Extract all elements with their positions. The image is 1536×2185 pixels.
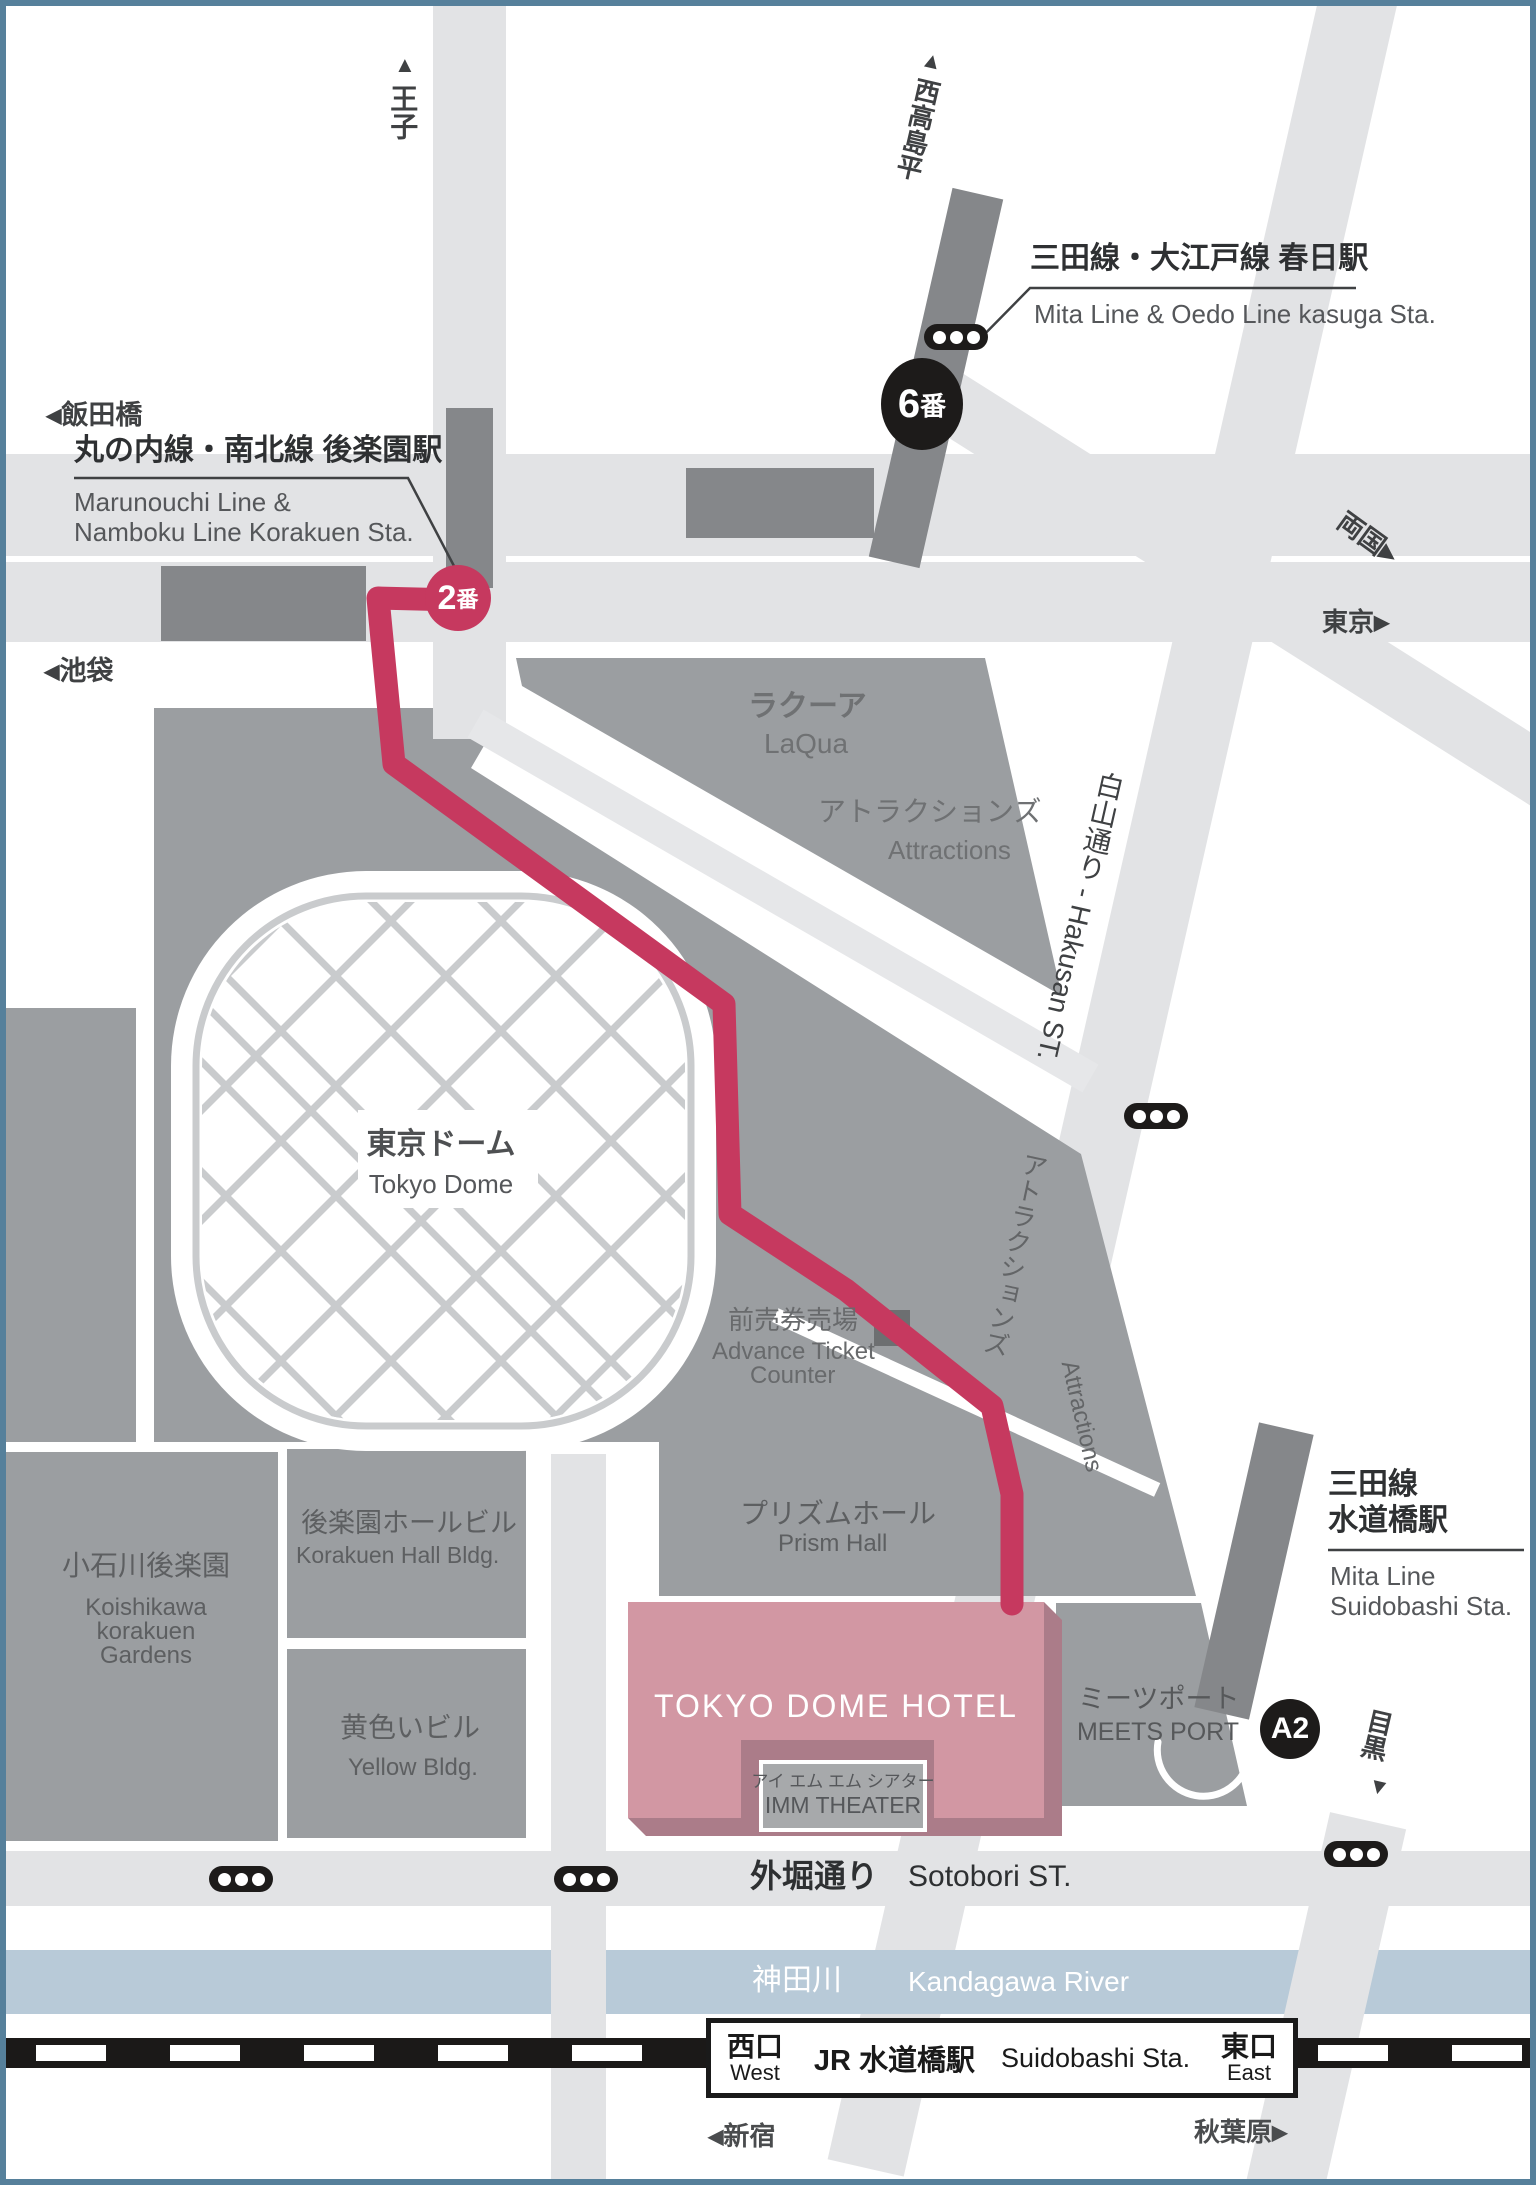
imm-theater-label-en: IMM THEATER xyxy=(765,1792,921,1820)
exit-a2-badge: A2 xyxy=(1260,1699,1320,1759)
exit-2-badge: 2番 xyxy=(425,565,491,631)
koishikawa-label-jp: 小石川後楽園 xyxy=(46,1550,246,1582)
sotobori-label-jp: 外堀通り xyxy=(750,1858,878,1895)
left-arrow-icon: ◀ xyxy=(46,405,61,427)
traffic-light-icon xyxy=(1324,1841,1388,1867)
tokyo-dome-label-jp: 東京ドーム xyxy=(361,1128,521,1163)
traffic-light-icon xyxy=(1124,1103,1188,1129)
suidobashi-mita-label-en1: Mita Line xyxy=(1330,1562,1436,1592)
korakuen-station-label-en1: Marunouchi Line & xyxy=(74,488,291,518)
traffic-light-icon xyxy=(924,324,988,350)
suidobashi-mita-label-en2: Suidobashi Sta. xyxy=(1330,1592,1512,1622)
yellow-bldg-label-jp: 黄色いビル xyxy=(340,1712,480,1744)
garden-north-block xyxy=(6,1008,136,1442)
meets-port-label-en: MEETS PORT xyxy=(1074,1718,1242,1747)
korakuen-hall-label-jp: 後楽園ホールビル xyxy=(301,1508,517,1539)
direction-oji: 王子 xyxy=(386,84,418,184)
korakuen-hall-label-en: Korakuen Hall Bldg. xyxy=(296,1542,499,1568)
jr-station-name: JR 水道橋駅 Suidobashi Sta. xyxy=(814,2037,1190,2079)
left-arrow-icon: ◀ xyxy=(708,2126,723,2148)
korakuen-station-label-en2: Namboku Line Korakuen Sta. xyxy=(74,518,414,548)
traffic-light-icon xyxy=(554,1866,618,1892)
jr-suidobashi-station-box: 西口 West JR 水道橋駅 Suidobashi Sta. 東口 East xyxy=(706,2018,1298,2098)
imm-theater-box: アイ エム エム シアター IMM THEATER xyxy=(759,1760,927,1832)
imm-theater-label-jp: アイ エム エム シアター xyxy=(751,1772,934,1792)
hotel-label: TOKYO DOME HOTEL xyxy=(636,1688,1036,1725)
right-arrow-icon: ▶ xyxy=(1374,612,1389,634)
laqua-label-en: LaQua xyxy=(764,728,848,760)
meets-port-label-jp: ミーツポート xyxy=(1078,1684,1238,1715)
direction-iidabashi: ◀飯田橋 xyxy=(46,400,142,431)
kasuga-station-label-en: Mita Line & Oedo Line kasuga Sta. xyxy=(1034,300,1436,330)
jr-east-exit: 東口 East xyxy=(1221,2032,1277,2084)
direction-akihabara: 秋葉原▶ xyxy=(1194,2118,1287,2148)
direction-tokyo: 東京▶ xyxy=(1322,608,1389,638)
river-label-en: Kandagawa River xyxy=(908,1966,1129,1998)
koishikawa-label-en3: Gardens xyxy=(46,1642,246,1670)
attractions-upper-label-jp: アトラクションズ xyxy=(818,796,1041,828)
exit-2-num: 2 xyxy=(438,579,457,618)
suidobashi-mita-label-jp1: 三田線 xyxy=(1328,1468,1418,1503)
traffic-light-icon xyxy=(209,1866,273,1892)
ticket-counter-label-en2: Counter xyxy=(750,1362,835,1390)
sotobori-label-en: Sotobori ST. xyxy=(908,1860,1071,1895)
direction-shinjuku: ◀新宿 xyxy=(708,2122,775,2152)
laqua-label-jp: ラクーア xyxy=(748,690,867,725)
kasuga-station-label-jp: 三田線・大江戸線 春日駅 xyxy=(1030,242,1368,277)
up-arrow-icon: ▲ xyxy=(394,52,416,77)
river-label-jp: 神田川 xyxy=(752,1964,842,1999)
road-vertical-south xyxy=(551,1454,606,2185)
left-arrow-icon: ◀ xyxy=(44,661,59,683)
prism-hall-label-en: Prism Hall xyxy=(778,1530,887,1558)
suidobashi-mita-label-jp2: 水道橋駅 xyxy=(1328,1504,1448,1539)
attractions-upper-label-en: Attractions xyxy=(888,836,1011,866)
right-arrow-icon: ▶ xyxy=(1272,2122,1287,2144)
ticket-counter-label-jp: 前売券売場 xyxy=(728,1306,858,1336)
yellow-bldg-label-en: Yellow Bldg. xyxy=(348,1754,478,1782)
exit-6-num: 6 xyxy=(898,382,920,427)
exit-6-suffix: 番 xyxy=(920,386,946,423)
tokyo-dome-label-en: Tokyo Dome xyxy=(361,1170,521,1200)
prism-hall-label-jp: プリズムホール xyxy=(740,1498,936,1530)
route-map: 2番 6番 A2 ▲ 王子 ▲ 西高島平 ◀飯田橋 ◀池袋 両国▶ 東京▶ 目黒… xyxy=(0,0,1536,2185)
korakuen-station-label-jp: 丸の内線・南北線 後楽園駅 xyxy=(74,434,442,469)
exit-2-suffix: 番 xyxy=(456,582,478,614)
jr-west-exit: 西口 West xyxy=(727,2032,783,2084)
exit-6-badge: 6番 xyxy=(881,358,963,450)
direction-ikebukuro: ◀池袋 xyxy=(44,656,113,687)
